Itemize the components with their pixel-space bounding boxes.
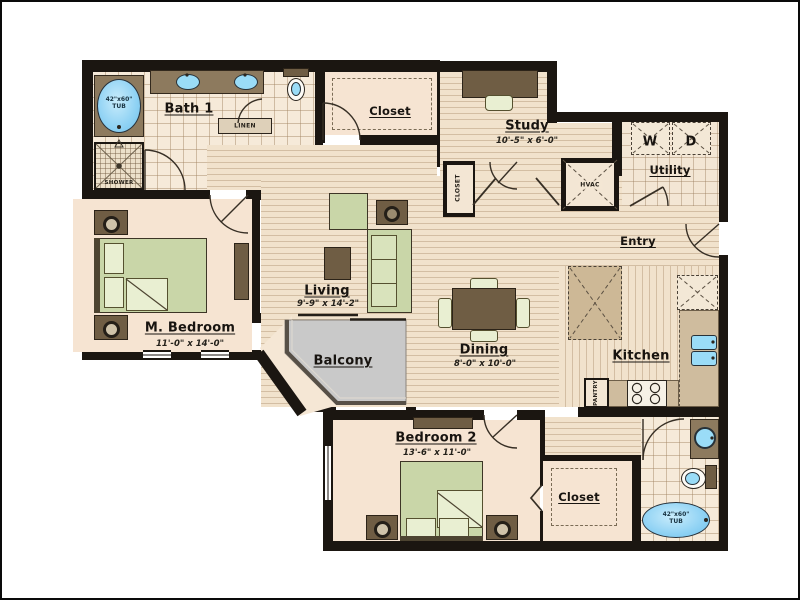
room-label-mbedroom: M. Bedroom <box>145 321 235 336</box>
bath2-sink <box>694 427 716 449</box>
wall-bottom <box>323 541 728 551</box>
stove <box>627 380 667 407</box>
wall-closet2-right <box>632 452 641 541</box>
bedroom2-pillow-1 <box>406 518 436 537</box>
tub-word: TUB <box>112 103 126 110</box>
dining-chair-bottom <box>470 330 498 342</box>
end-table-lamp <box>384 206 400 222</box>
refrigerator <box>677 275 718 310</box>
room-label-utility: Utility <box>649 163 690 177</box>
room-label-bedroom2: Bedroom 2 <box>395 431 476 446</box>
room-dims-study: 10'-5" x 6'-0" <box>496 136 558 146</box>
bedroom2-nightstand-2 <box>486 515 518 540</box>
dining-chair-right <box>516 298 530 328</box>
master-nightstand-1 <box>94 210 128 235</box>
wall-closet-left <box>315 60 325 143</box>
label-washer: W <box>643 135 658 150</box>
label-dryer: D <box>686 135 697 150</box>
mbed-window-1 <box>143 350 171 360</box>
toilet2-tank <box>705 465 717 489</box>
lamp <box>494 521 511 538</box>
wall-bedroom2-top-b <box>517 410 534 420</box>
entry-door-opening <box>719 222 728 255</box>
vanity-sink-right <box>234 74 258 90</box>
master-bed-headboard <box>94 238 100 313</box>
room-label-balcony: Balcony <box>314 354 373 369</box>
master-pillow-2 <box>104 277 124 308</box>
room-label-kitchen: Kitchen <box>612 349 669 364</box>
room-dims-living: 9'-9" x 14'-2" <box>297 299 359 309</box>
bedroom2-headboard <box>400 536 483 541</box>
master-bed-sheet <box>126 278 168 311</box>
toilet1-seat <box>291 82 301 96</box>
tub-size: 42"x60" <box>106 96 133 103</box>
room-label-bath1: Bath 1 <box>165 102 214 117</box>
label-master-tub: 42"x60" TUB <box>106 96 133 110</box>
toilet1-tank <box>283 68 309 77</box>
dining-table <box>452 288 516 330</box>
bedroom2-window <box>323 446 333 500</box>
label-hvac: HVAC <box>578 181 602 190</box>
study-chair <box>485 95 513 111</box>
room-label-study: Study <box>505 119 549 134</box>
mbed-window-2 <box>201 350 229 360</box>
sofa-seats <box>371 235 397 307</box>
label-pantry: PANTRY <box>593 380 599 406</box>
room-label-mcloset: Closet <box>369 104 411 118</box>
vanity-sink-left <box>176 74 200 90</box>
kitchen-sink-top <box>691 335 717 350</box>
wall-right-lower <box>719 255 728 550</box>
room-dims-mbedroom: 11'-0" x 14'-0" <box>156 339 224 349</box>
wall-utility-top <box>547 112 728 122</box>
kitchen-island <box>568 266 622 340</box>
room-label-entry: Entry <box>620 234 656 248</box>
room-label-dining: Dining <box>460 343 509 358</box>
lamp <box>374 521 391 538</box>
bedroom2-nightstand-1 <box>366 515 398 540</box>
coffee-table <box>324 247 351 280</box>
wall-closet-bottom-b <box>360 135 437 145</box>
tub-size: 42"x60" <box>663 511 690 518</box>
floor-plan: Bath 1 Closet Study 10'-5" x 6'-0" Utili… <box>0 0 800 600</box>
study-desk <box>462 70 538 98</box>
end-table <box>376 200 408 225</box>
label-hall-closet: CLOSET <box>455 174 462 201</box>
bed2-hall-floor <box>545 417 641 455</box>
label-bath2-tub: 42"x60" TUB <box>663 511 690 525</box>
room-label-living: Living <box>304 284 349 299</box>
room-label-closet2: Closet <box>558 490 600 504</box>
toilet2-seat <box>685 472 700 485</box>
dining-chair-left <box>438 298 452 328</box>
master-dresser <box>234 243 249 300</box>
master-pillow-1 <box>104 243 124 274</box>
kitchen-sink-bottom <box>691 351 717 366</box>
room-dims-dining: 8'-0" x 10'-0" <box>454 359 516 369</box>
wall-closet-bottom-a <box>315 135 323 145</box>
label-shower: SHOWER <box>104 180 133 186</box>
bedroom2-pillow-2 <box>439 518 469 537</box>
lamp <box>103 216 120 233</box>
tub-word: TUB <box>669 518 683 525</box>
label-linen: LINEN <box>234 123 256 130</box>
lamp <box>103 321 120 338</box>
loveseat <box>329 193 368 230</box>
bedroom2-dresser <box>413 417 473 429</box>
master-nightstand-2 <box>94 315 128 340</box>
room-dims-bedroom2: 13'-6" x 11'-0" <box>403 448 471 458</box>
wall-kitchen-bottom <box>578 407 719 417</box>
